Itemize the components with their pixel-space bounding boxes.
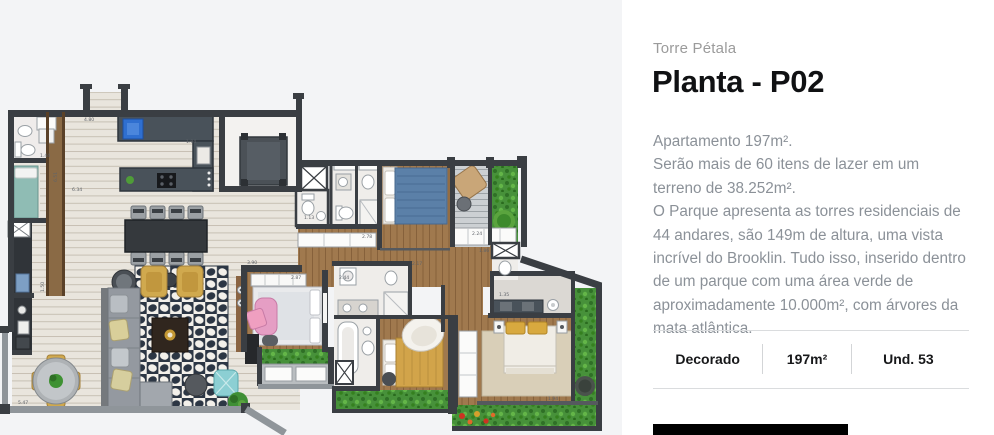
master-wardrobe (459, 331, 477, 397)
plant-pot (126, 176, 134, 184)
svg-text:6.51: 6.51 (53, 172, 59, 182)
toilet (362, 175, 374, 189)
laundry-sink (16, 274, 29, 292)
toilet (339, 207, 353, 219)
svg-text:5.47: 5.47 (18, 400, 28, 406)
toilet (385, 271, 397, 285)
details-panel: Torre Pétala Planta - P02 Apartamento 19… (640, 0, 994, 435)
pouf (185, 374, 207, 396)
toilet (302, 201, 314, 215)
spec-unit: Und. 53 (852, 344, 965, 374)
svg-text:1.04: 1.04 (186, 139, 196, 145)
spec-row: Decorado 197m² Und. 53 (653, 344, 965, 374)
svg-text:1.13: 1.13 (304, 215, 314, 221)
svg-text:1.44: 1.44 (40, 153, 50, 159)
divider-top (653, 330, 969, 331)
svg-text:1.86: 1.86 (479, 248, 489, 254)
svg-text:2.44: 2.44 (339, 275, 349, 281)
svg-text:6.34: 6.34 (72, 187, 82, 193)
ottoman (382, 372, 396, 386)
toilet (499, 261, 511, 275)
page: 4.801.046.511.446.341.505.473.901.132.78… (0, 0, 994, 435)
toilet (21, 145, 35, 156)
cooktop (157, 173, 176, 188)
description-line: Apartamento 197m². (653, 130, 971, 153)
divider-bottom (653, 388, 969, 389)
dresser (245, 334, 259, 364)
tower-name: Torre Pétala (653, 40, 736, 57)
cta-button[interactable] (653, 424, 848, 435)
svg-text:2.24: 2.24 (472, 231, 482, 237)
spec-decorado: Decorado (653, 344, 762, 374)
svg-text:2.17: 2.17 (412, 261, 422, 267)
floor-plan-svg: 4.801.046.511.446.341.505.473.901.132.78… (0, 0, 622, 435)
description-line: O Parque apresenta as torres residenciai… (653, 200, 971, 340)
sink (317, 212, 326, 221)
elevator (240, 133, 287, 186)
spec-area: 197m² (762, 344, 851, 374)
svg-text:1.50: 1.50 (40, 282, 46, 292)
dining-table (125, 220, 207, 252)
svg-text:4.80: 4.80 (84, 117, 94, 123)
plan-description: Apartamento 197m². Serão mais de 60 iten… (653, 130, 971, 341)
plan-title: Planta - P02 (652, 64, 824, 100)
grill-knob (18, 306, 26, 314)
svg-text:3.90: 3.90 (247, 260, 257, 266)
coffee-machine (197, 147, 210, 164)
svg-text:2.87: 2.87 (291, 275, 301, 281)
svg-text:1.35: 1.35 (499, 292, 509, 298)
svg-text:1.94: 1.94 (548, 396, 558, 402)
bathroom-sink (18, 126, 32, 137)
svg-text:2.78: 2.78 (362, 234, 372, 240)
toilet (362, 341, 374, 355)
floor-plan-image: 4.801.046.511.446.341.505.473.901.132.78… (0, 0, 622, 435)
description-line: Serão mais de 60 itens de lazer em um te… (653, 153, 971, 200)
